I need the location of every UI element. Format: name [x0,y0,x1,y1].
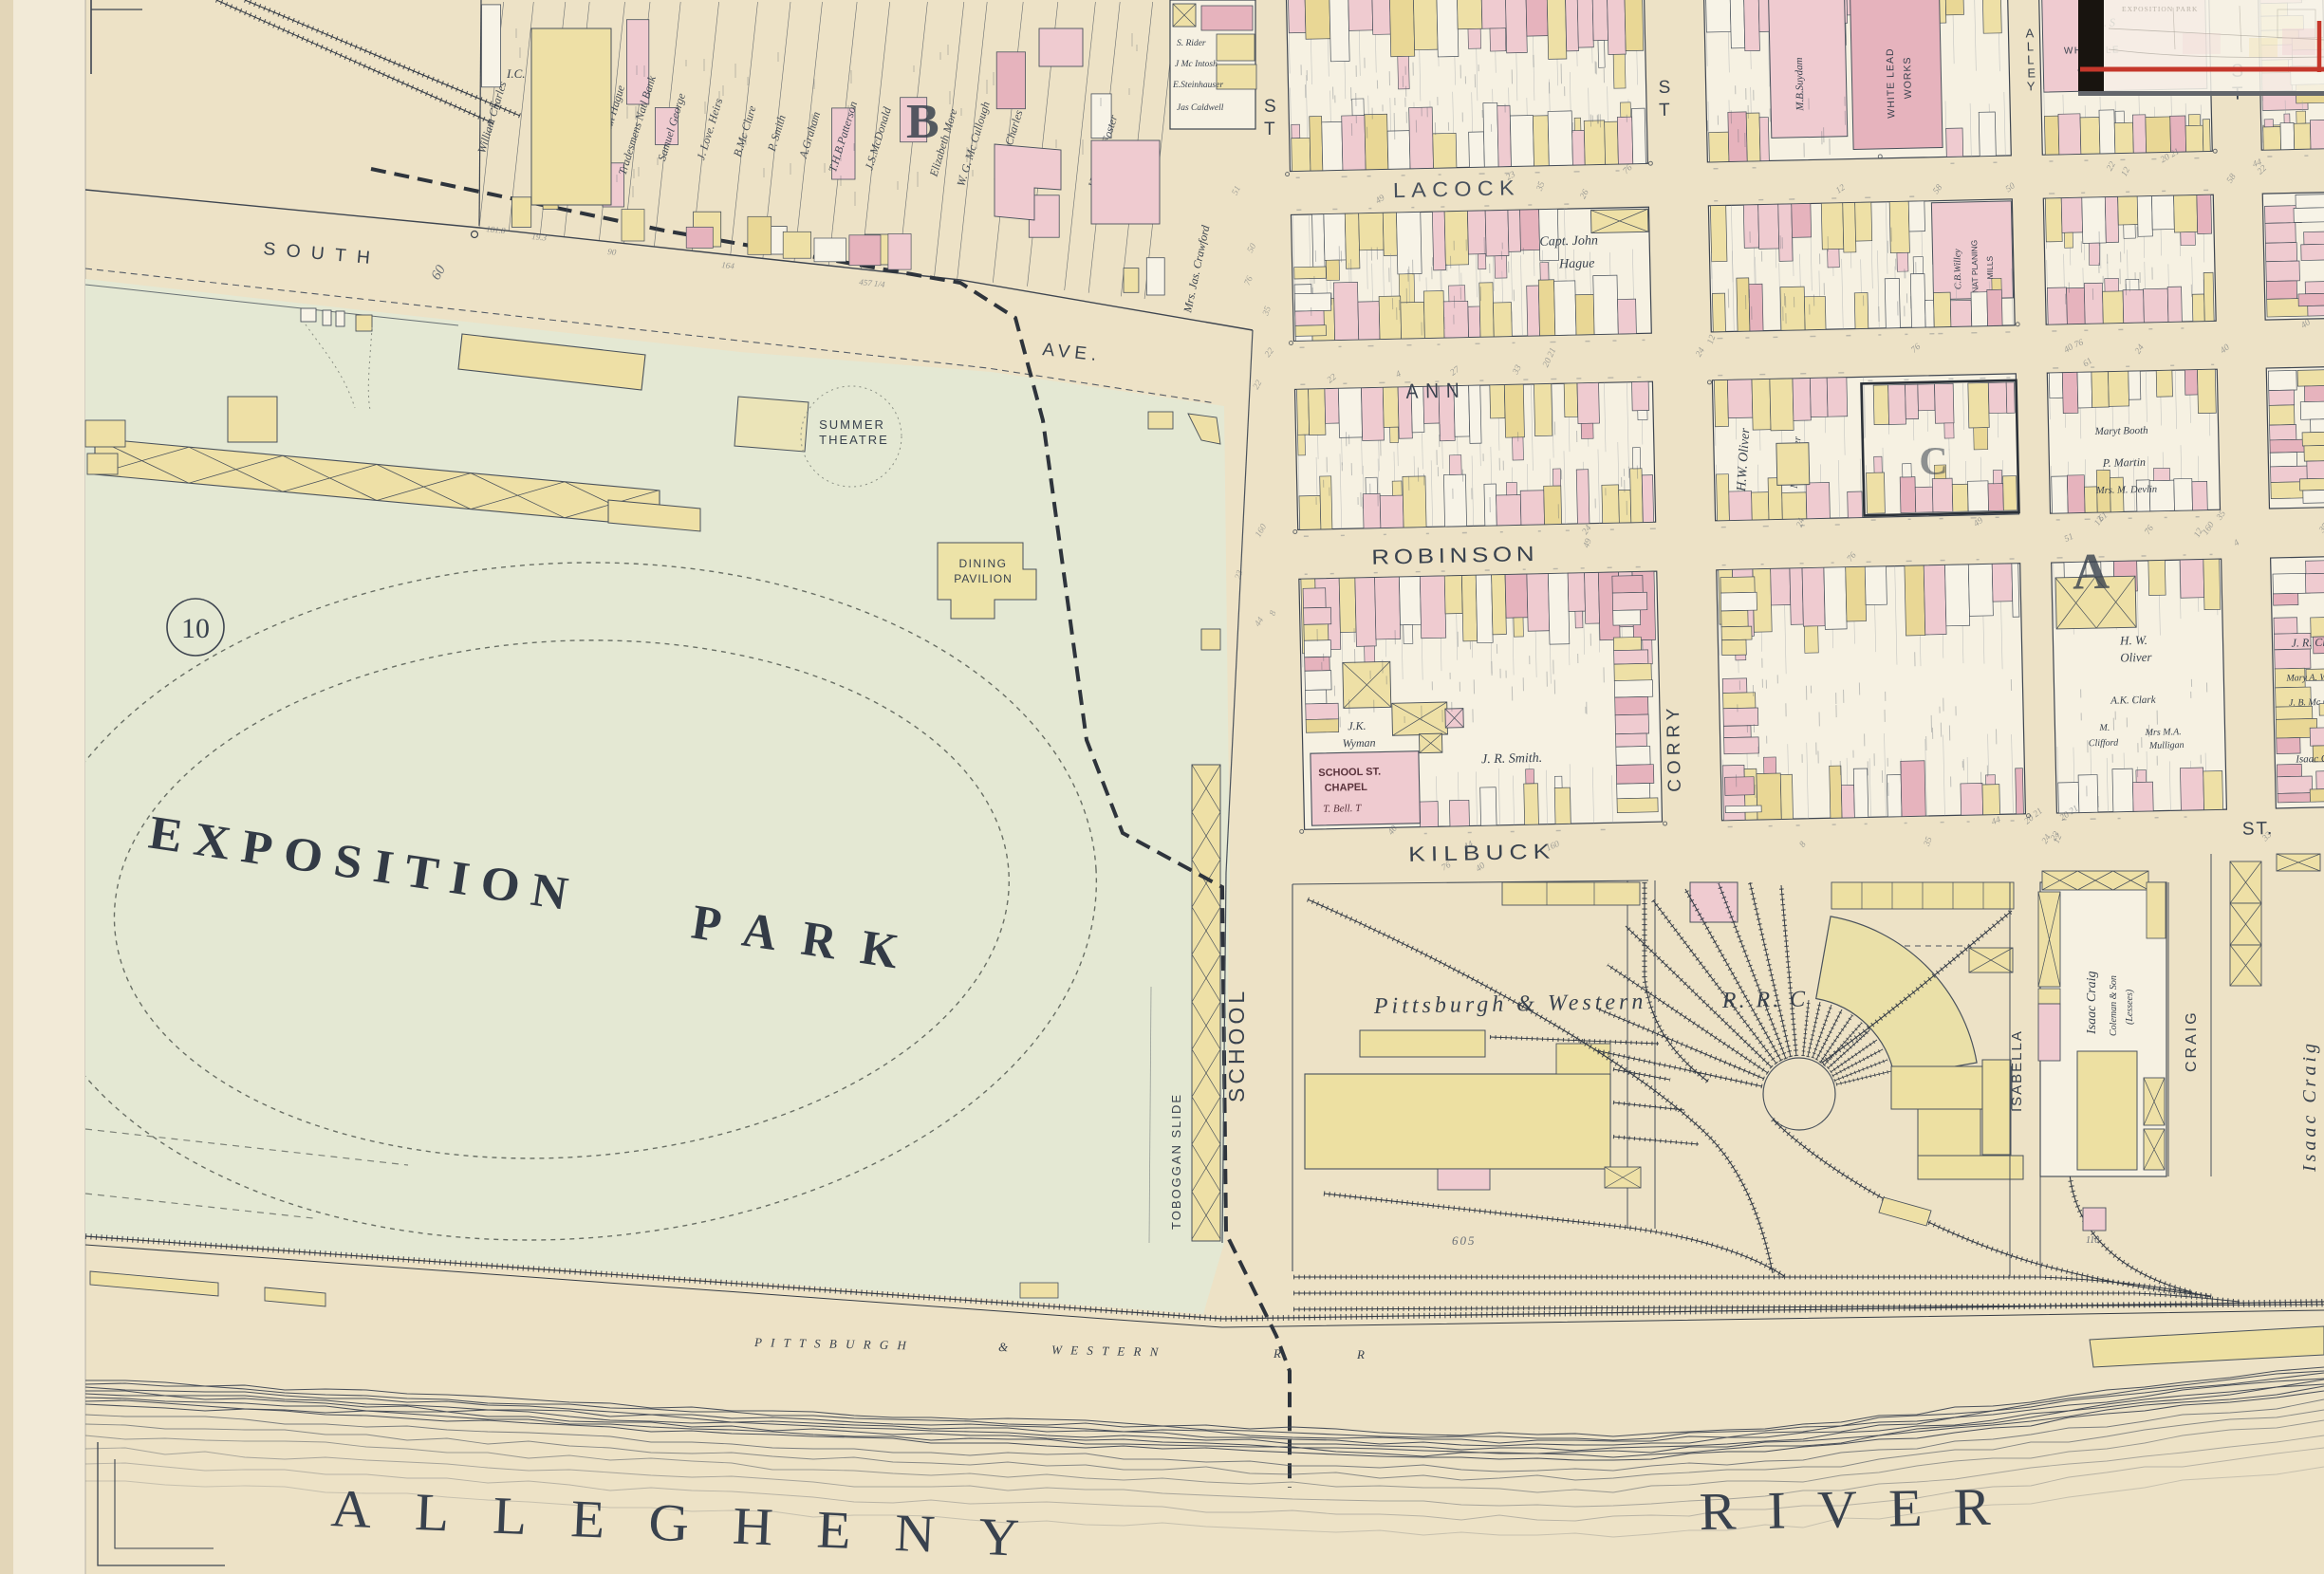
svg-text:R .: R . [1273,1346,1287,1361]
svg-text:T: T [1659,101,1670,120]
svg-text:ISABELLA: ISABELLA [2009,1029,2025,1112]
svg-text:C.B.Willey: C.B.Willey [1952,249,1963,290]
svg-text:RIVER: RIVER [1699,1477,2022,1542]
svg-text:J Mc Intosh: J Mc Intosh [1175,60,1218,69]
svg-text:Hague: Hague [1558,257,1595,272]
svg-text:10: 10 [181,613,210,644]
svg-text:SUMMER: SUMMER [819,417,885,432]
svg-text:Wyman: Wyman [1342,736,1375,750]
svg-text:B: B [906,95,939,149]
svg-text:DINING: DINING [959,557,1008,570]
svg-text:C: C [1919,439,1948,484]
svg-text:J. B. Mc Co: J. B. Mc Co [2289,697,2324,709]
svg-text:Isaac Craig: Isaac Craig [2085,972,2099,1036]
svg-text:CORRY: CORRY [1664,703,1685,792]
svg-text:L: L [2027,52,2035,66]
svg-text:T. Bell. T: T. Bell. T [1323,803,1362,815]
svg-text:Clifford: Clifford [2089,738,2120,750]
svg-text:Mary A. War: Mary A. War [2285,673,2324,684]
svg-text:MILLS: MILLS [1985,255,1996,279]
svg-text:Mulligan: Mulligan [2148,740,2185,751]
svg-text:19.3: 19.3 [531,231,548,243]
svg-text:WHITE LEAD: WHITE LEAD [1885,47,1898,118]
svg-text:164: 164 [721,260,735,270]
svg-text:S: S [1658,78,1670,98]
svg-text:E.Steinhauser: E.Steinhauser [1172,81,1223,90]
svg-text:TOBOGGAN SLIDE: TOBOGGAN SLIDE [1169,1093,1183,1230]
svg-text:Pittsburgh & Western: Pittsburgh & Western [1373,990,1647,1019]
svg-text:ANN: ANN [1405,378,1467,402]
svg-text:THEATRE: THEATRE [819,433,889,447]
svg-text:S: S [1264,97,1276,117]
svg-text:I.C.: I.C. [506,66,526,81]
svg-text:A: A [2072,543,2110,601]
svg-text:WORKS: WORKS [1902,56,1914,99]
svg-text:Mrs. M. Devlin: Mrs. M. Devlin [2095,485,2157,496]
svg-text:LACOCK: LACOCK [1393,176,1521,202]
svg-text:Coleman & Son: Coleman & Son [2109,975,2119,1036]
svg-text:PAVILION: PAVILION [954,572,1013,585]
svg-text:P. Martin: P. Martin [2102,455,2146,470]
svg-text:W E S T E R N: W E S T E R N [1051,1343,1162,1359]
svg-text:CHAPEL: CHAPEL [1325,782,1368,794]
svg-text:J.K.: J.K. [1348,719,1367,732]
svg-text:M.B.Suydam: M.B.Suydam [1794,57,1806,112]
svg-text:(Lessees): (Lessees) [2125,989,2135,1025]
svg-text:Capt. John: Capt. John [1539,233,1598,249]
svg-text:SCHOOL ST.: SCHOOL ST. [1318,767,1381,779]
svg-text:H. W.: H. W. [2119,633,2147,648]
svg-text:J. R. Smith.: J. R. Smith. [1481,751,1542,767]
svg-text:110: 110 [2086,1235,2099,1246]
svg-text:Mrs M.A.: Mrs M.A. [2144,727,2181,738]
svg-text:90: 90 [607,247,617,257]
svg-text:605: 605 [1452,1233,1477,1248]
svg-text:J. R. Clar: J. R. Clar [2291,636,2324,650]
svg-text:SCHOOL: SCHOOL [1224,988,1249,1102]
svg-text:Oliver: Oliver [2120,650,2152,665]
svg-text:A.K. Clark: A.K. Clark [2110,694,2157,707]
svg-text:&: & [998,1340,1009,1354]
svg-text:S. Rider: S. Rider [1177,39,1206,48]
svg-text:L: L [2027,39,2035,53]
svg-text:EXPOSITION PARK: EXPOSITION PARK [2122,5,2198,13]
svg-text:CRAIG: CRAIG [2184,1009,2200,1072]
svg-text:E: E [2027,65,2036,80]
svg-text:NAT PLANING: NAT PLANING [1969,240,1980,293]
svg-text:Isaac C: Isaac C [2295,753,2324,766]
svg-text:T: T [1264,120,1275,139]
svg-text:M.: M. [2098,723,2110,733]
svg-text:Jas Caldwell: Jas Caldwell [1177,103,1224,113]
svg-text:Maryt Booth: Maryt Booth [2094,425,2149,437]
svg-text:Isaac Craig: Isaac Craig [2299,1040,2320,1173]
svg-text:R: R [1356,1347,1365,1361]
svg-text:ROBINSON: ROBINSON [1371,542,1539,569]
svg-text:A: A [2025,26,2034,40]
svg-text:Y: Y [2027,79,2036,93]
